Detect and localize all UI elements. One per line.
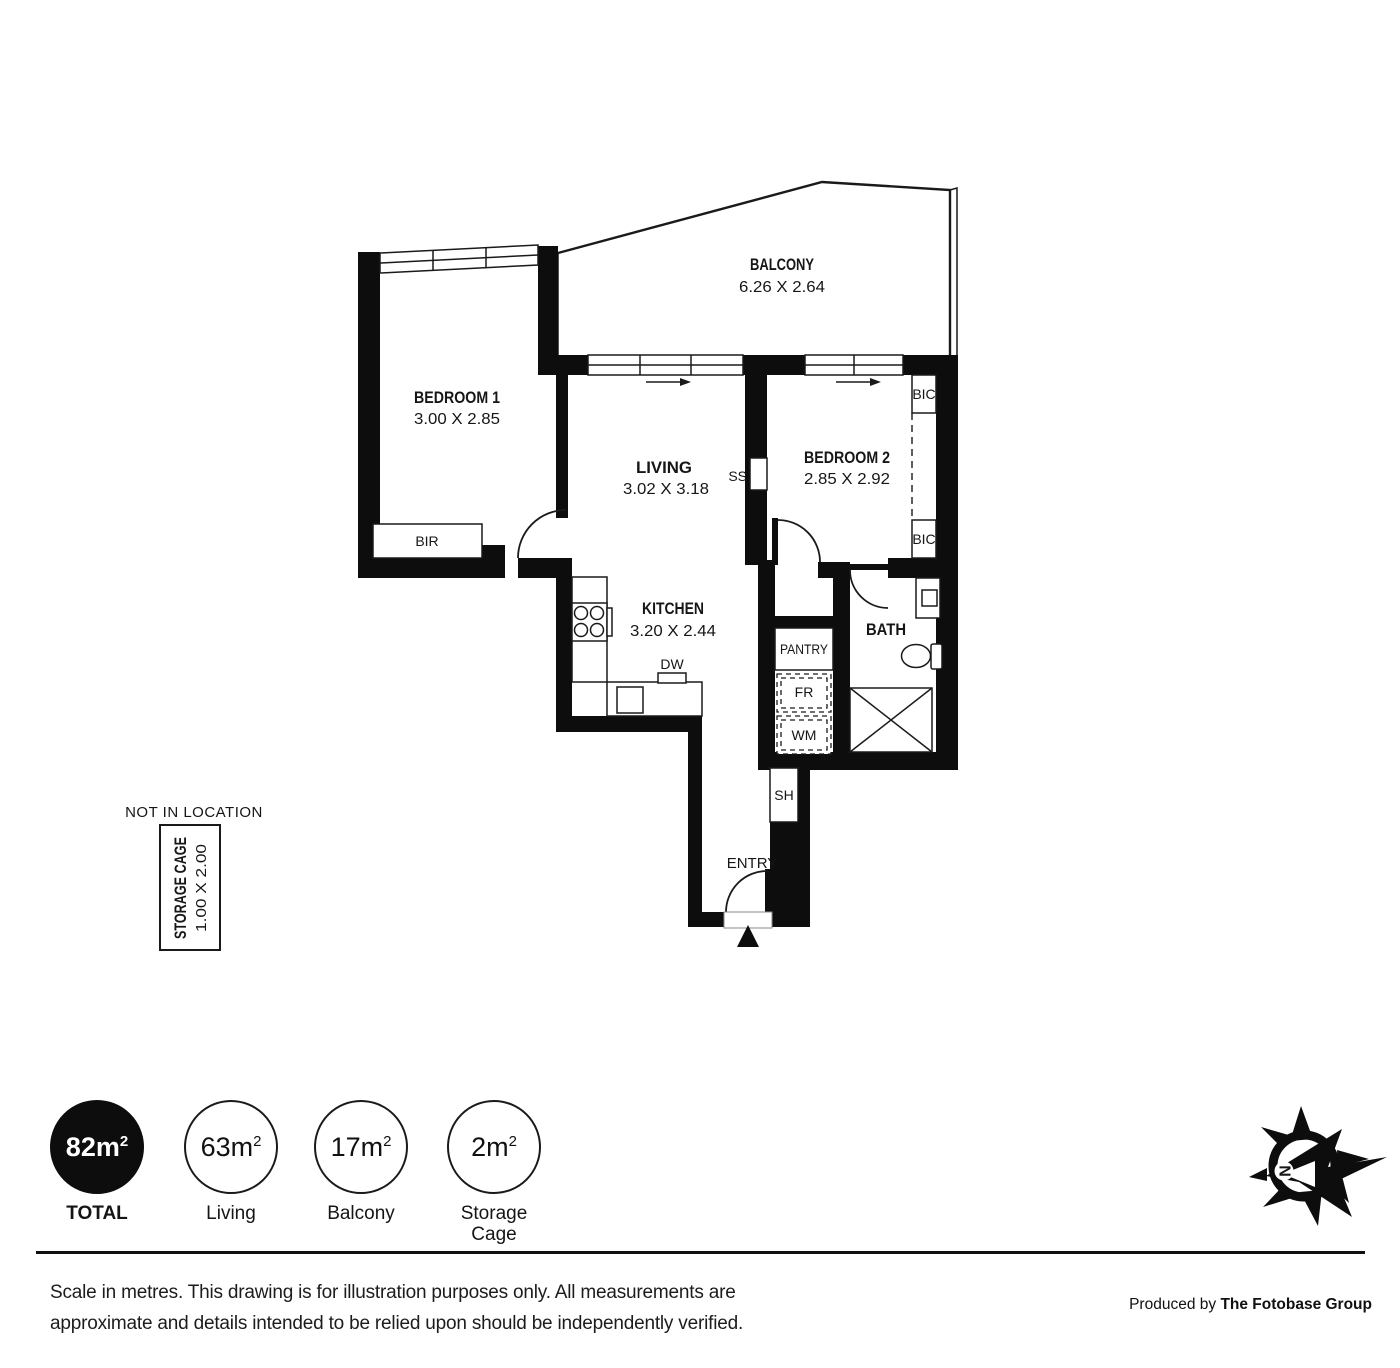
- floorplan-page: BIR BIC BIC SS DW PANTRY FR: [0, 0, 1400, 1368]
- legend-balcony-label: Balcony: [296, 1204, 426, 1225]
- bic-top-label: BIC: [912, 386, 935, 402]
- legend-balcony-circle: 17m2: [314, 1100, 408, 1194]
- legend-storage-label: Storage Cage: [446, 1204, 542, 1246]
- disclaimer-line2: approximate and details intended to be r…: [50, 1313, 743, 1334]
- wm-label: WM: [792, 727, 817, 743]
- compass-icon: N: [1249, 1106, 1387, 1226]
- legend-storage-circle: 2m2: [447, 1100, 541, 1194]
- bath-door-arc: [850, 570, 888, 608]
- pantry: PANTRY: [775, 628, 833, 670]
- legend-storage-value: 2m: [471, 1132, 509, 1162]
- ss-label: SS: [728, 468, 747, 484]
- producer-credit: Produced by The Fotobase Group: [1129, 1296, 1372, 1314]
- bic-bottom-label: BIC: [912, 531, 935, 547]
- sliding-door-arrow-bedroom2: [836, 378, 881, 386]
- credit-prefix: Produced by: [1129, 1296, 1220, 1313]
- storage-cage-dims: 1.00 X 2.00: [193, 844, 210, 932]
- balcony-name: BALCONY: [750, 255, 814, 274]
- entry-threshold: [724, 912, 772, 947]
- bedroom2-name: BEDROOM 2: [804, 448, 890, 467]
- shower: [850, 688, 932, 752]
- legend-living-value: 63m: [201, 1132, 254, 1162]
- washing-machine-space: WM: [777, 716, 831, 754]
- bedroom1-dims: 3.00 X 2.85: [414, 411, 500, 428]
- kitchen-name: KITCHEN: [642, 599, 704, 618]
- footer-divider: [36, 1251, 1365, 1254]
- legend-balcony-value: 17m: [331, 1132, 384, 1162]
- compass-north-label: N: [1276, 1165, 1293, 1177]
- living-name: LIVING: [636, 458, 692, 477]
- living-window: [588, 355, 743, 375]
- disclaimer-text: Scale in metres. This drawing is for ill…: [50, 1277, 743, 1339]
- bedroom2-dims: 2.85 X 2.92: [804, 471, 890, 488]
- legend-living: 63m2 Living: [166, 1100, 296, 1225]
- bedroom2-window: [805, 355, 903, 375]
- legend-total-value: 82m: [66, 1132, 120, 1162]
- bedroom2-door-arc: [778, 520, 820, 562]
- disclaimer-line1: Scale in metres. This drawing is for ill…: [50, 1282, 736, 1303]
- legend-total-circle: 82m2: [50, 1100, 144, 1194]
- walls: [358, 246, 958, 927]
- legend-living-circle: 63m2: [184, 1100, 278, 1194]
- fr-label: FR: [795, 684, 814, 700]
- storage-note: NOT IN LOCATION: [125, 804, 263, 821]
- storage-cage-name: STORAGE CAGE: [171, 837, 190, 939]
- legend-living-label: Living: [166, 1204, 296, 1225]
- credit-name: The Fotobase Group: [1220, 1296, 1372, 1313]
- dishwasher: DW: [658, 656, 686, 683]
- legend-total: 82m2 TOTAL: [32, 1100, 162, 1225]
- sh-label: SH: [774, 787, 793, 803]
- bath-name: BATH: [866, 620, 906, 639]
- balcony-dims: 6.26 X 2.64: [739, 279, 825, 296]
- bic-cupboards: BIC BIC: [912, 375, 936, 558]
- pantry-label: PANTRY: [780, 641, 829, 657]
- toilet-icon: [902, 644, 943, 669]
- sink-icon: [617, 687, 643, 713]
- entry-door-arc: [726, 871, 767, 912]
- bir-label: BIR: [415, 533, 438, 549]
- cooktop-icon: [572, 603, 612, 641]
- living-dims: 3.02 X 3.18: [623, 481, 709, 498]
- legend-total-label: TOTAL: [32, 1204, 162, 1225]
- legend-balcony: 17m2 Balcony: [296, 1100, 426, 1225]
- fridge-space: FR: [777, 674, 831, 712]
- sh-shelf: SH: [770, 768, 798, 822]
- legend-storage: 2m2 Storage Cage: [429, 1100, 559, 1246]
- vanity: [916, 578, 940, 618]
- bedroom1-window: [380, 245, 538, 273]
- storage-cage: NOT IN LOCATION STORAGE CAGE 1.00 X 2.00: [125, 804, 263, 950]
- bir-robe: BIR: [373, 524, 482, 558]
- kitchen-dims: 3.20 X 2.44: [630, 623, 716, 640]
- dw-label: DW: [660, 656, 684, 672]
- bedroom1-name: BEDROOM 1: [414, 388, 500, 407]
- entry-label: ENTRY: [727, 855, 778, 872]
- sliding-door-arrow-living: [646, 378, 691, 386]
